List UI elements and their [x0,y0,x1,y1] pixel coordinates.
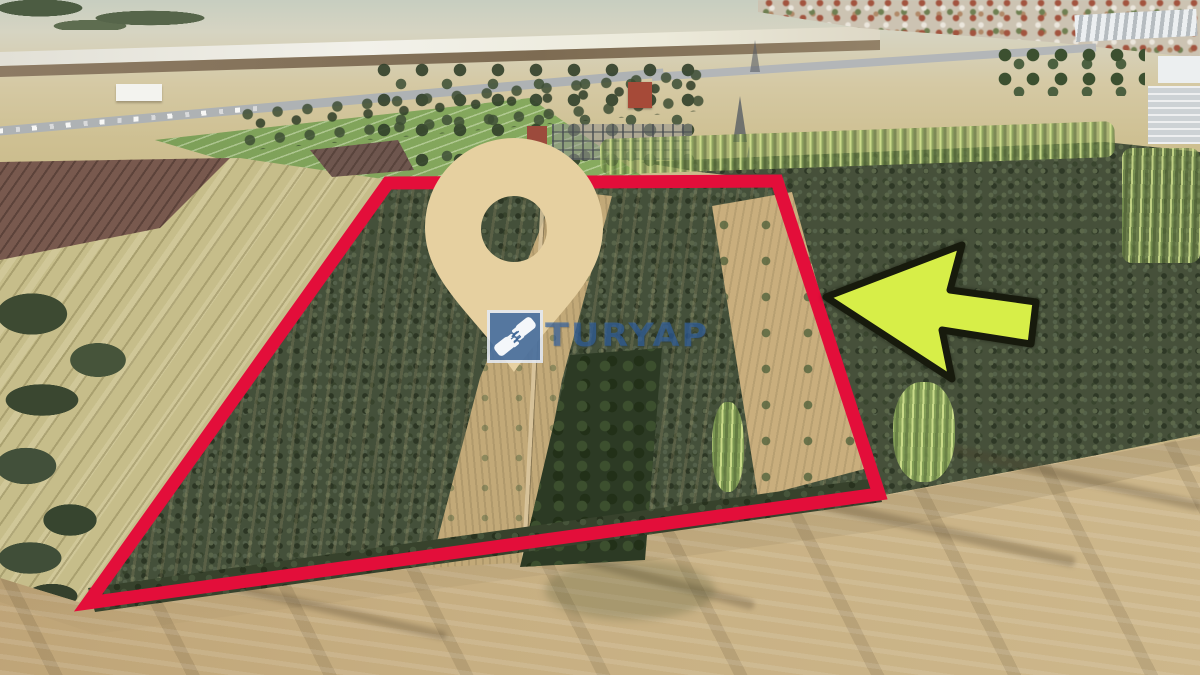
brand-wordmark: TURYAP [545,319,709,352]
logo-square [487,310,543,363]
aerial-photo: TURYAP [0,0,1200,675]
handshake-icon [490,313,540,360]
